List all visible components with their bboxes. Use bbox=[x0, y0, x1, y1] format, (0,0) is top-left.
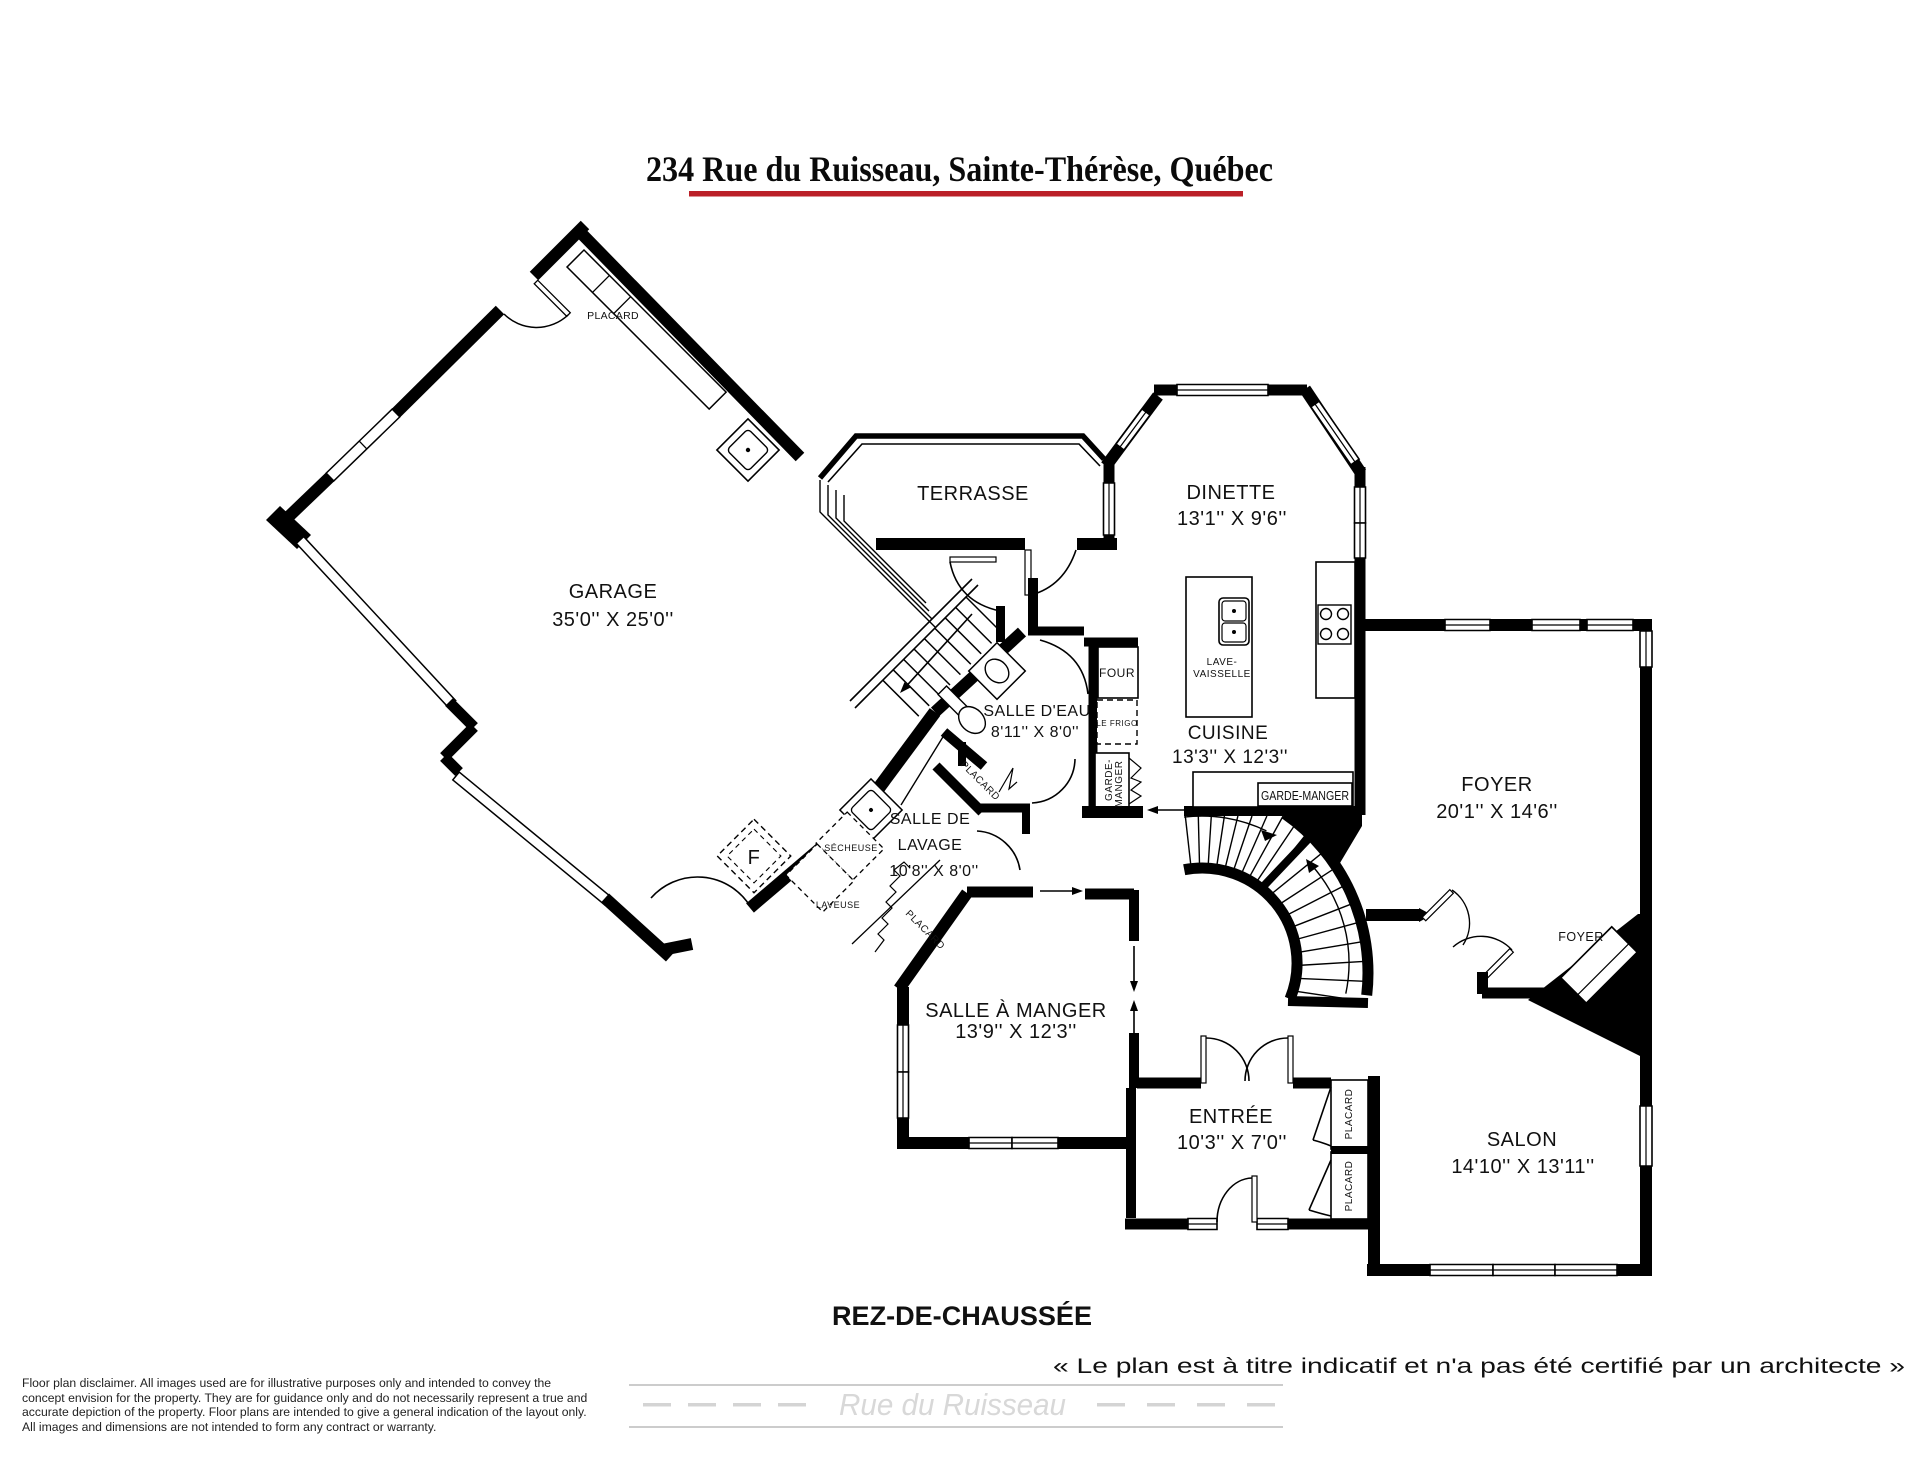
svg-text:35'0'' X 25'0'': 35'0'' X 25'0'' bbox=[552, 609, 674, 631]
svg-text:LAVEUSE: LAVEUSE bbox=[816, 900, 860, 910]
svg-text:13'3'' X 12'3'': 13'3'' X 12'3'' bbox=[1172, 747, 1288, 768]
svg-text:234 Rue du Ruisseau, Sainte-Th: 234 Rue du Ruisseau, Sainte-Thérèse, Qué… bbox=[646, 149, 1273, 189]
svg-text:TERRASSE: TERRASSE bbox=[917, 483, 1029, 505]
svg-text:SÉCHEUSE: SÉCHEUSE bbox=[824, 843, 878, 853]
svg-text:FOYER: FOYER bbox=[1461, 774, 1532, 796]
svg-text:20'1'' X 14'6'': 20'1'' X 14'6'' bbox=[1436, 801, 1558, 823]
svg-text:F: F bbox=[748, 847, 761, 869]
svg-text:GARDE-MANGER: GARDE-MANGER bbox=[1261, 789, 1349, 803]
svg-text:SALLE À MANGER: SALLE À MANGER bbox=[925, 999, 1107, 1022]
svg-text:FOUR: FOUR bbox=[1099, 666, 1135, 680]
svg-text:10'3'' X 7'0'': 10'3'' X 7'0'' bbox=[1177, 1132, 1287, 1154]
svg-text:MANGER: MANGER bbox=[1114, 761, 1125, 808]
svg-text:13'1'' X 9'6'': 13'1'' X 9'6'' bbox=[1177, 508, 1287, 530]
svg-text:SALLE D'EAU: SALLE D'EAU bbox=[983, 703, 1090, 720]
svg-text:concept envision for the prope: concept envision for the property. They … bbox=[22, 1391, 587, 1405]
svg-text:LE FRIGO: LE FRIGO bbox=[1096, 719, 1137, 728]
svg-text:LAVAGE: LAVAGE bbox=[898, 837, 963, 854]
svg-text:13'9'' X 12'3'': 13'9'' X 12'3'' bbox=[955, 1021, 1077, 1043]
svg-text:REZ-DE-CHAUSSÉE: REZ-DE-CHAUSSÉE bbox=[832, 1300, 1092, 1331]
svg-text:LAVE-: LAVE- bbox=[1207, 657, 1238, 668]
svg-text:Floor plan disclaimer. All ima: Floor plan disclaimer. All images used a… bbox=[22, 1376, 551, 1390]
svg-text:SALON: SALON bbox=[1487, 1129, 1557, 1151]
svg-text:PLACARD: PLACARD bbox=[1344, 1089, 1355, 1140]
svg-text:8'11'' X 8'0'': 8'11'' X 8'0'' bbox=[991, 724, 1079, 741]
svg-text:« Le plan est à titre indicati: « Le plan est à titre indicatif et n'a p… bbox=[1053, 1355, 1905, 1378]
svg-text:GARAGE: GARAGE bbox=[569, 581, 658, 603]
svg-text:All images and dimensions are: All images and dimensions are not intend… bbox=[22, 1420, 436, 1434]
svg-text:Rue du Ruisseau: Rue du Ruisseau bbox=[839, 1387, 1066, 1422]
svg-text:14'10'' X 13'11'': 14'10'' X 13'11'' bbox=[1451, 1156, 1594, 1178]
svg-text:FOYER: FOYER bbox=[1558, 930, 1604, 944]
svg-text:accurate depiction of the prop: accurate depiction of the property. Floo… bbox=[22, 1405, 587, 1419]
svg-text:PLACARD: PLACARD bbox=[587, 310, 639, 322]
svg-text:PLACARD: PLACARD bbox=[1344, 1161, 1355, 1212]
svg-text:SALLE DE: SALLE DE bbox=[890, 811, 970, 828]
svg-text:DINETTE: DINETTE bbox=[1186, 482, 1275, 504]
svg-text:VAISSELLE: VAISSELLE bbox=[1193, 669, 1251, 680]
svg-text:CUISINE: CUISINE bbox=[1188, 723, 1269, 744]
svg-text:ENTRÉE: ENTRÉE bbox=[1189, 1105, 1273, 1128]
